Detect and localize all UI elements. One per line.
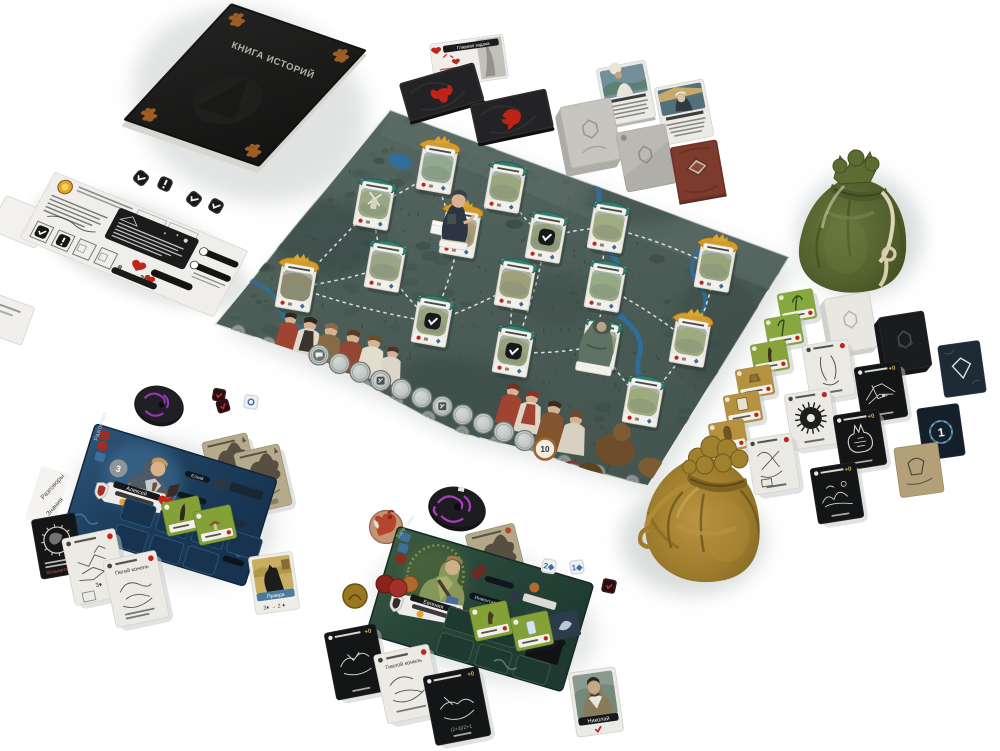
svg-text:1◆: 1◆ bbox=[571, 562, 583, 572]
svg-text:10: 10 bbox=[541, 445, 550, 454]
